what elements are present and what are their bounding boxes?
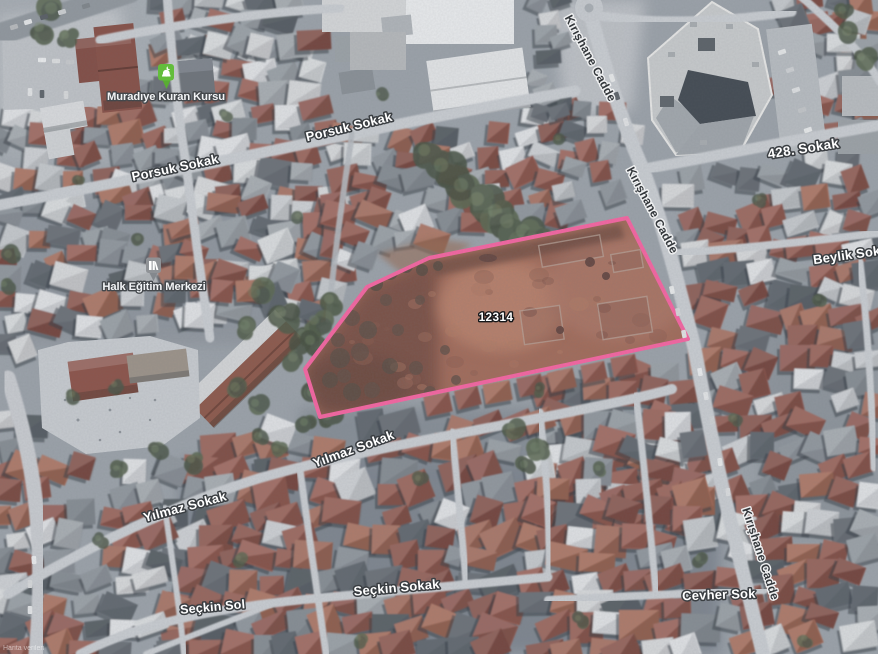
svg-text:12314: 12314 <box>479 310 514 324</box>
svg-text:Halk Eğitim Merkezi: Halk Eğitim Merkezi <box>102 281 205 293</box>
svg-text:Muradıye Kuran Kursu: Muradıye Kuran Kursu <box>107 91 225 103</box>
svg-text:Harita verileri: Harita verileri <box>3 645 45 652</box>
svg-text:Cevher Sok: Cevher Sok <box>682 586 757 604</box>
